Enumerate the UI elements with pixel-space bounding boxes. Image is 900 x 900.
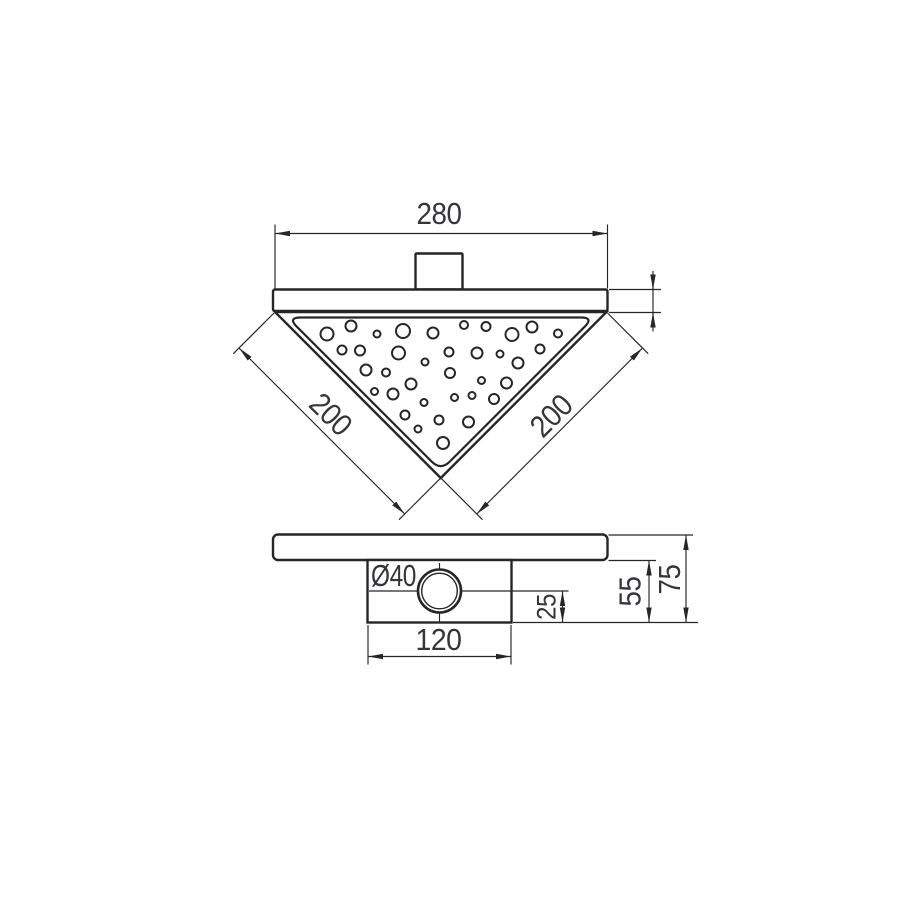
drain-hole <box>445 348 454 357</box>
drain-hole <box>460 321 468 329</box>
mount-tab <box>416 254 463 290</box>
drawing-canvas: 280 200 <box>0 0 900 900</box>
dim-body-height: 55 <box>609 561 657 623</box>
dim-outlet-diameter-label: Ø40 <box>371 558 416 593</box>
dim-offset-25-label: 25 <box>531 594 561 620</box>
drain-hole <box>469 392 476 399</box>
drain-hole <box>489 394 499 404</box>
top-view: 280 200 <box>233 196 661 520</box>
drain-hole <box>482 322 491 331</box>
drain-hole <box>506 328 519 341</box>
drain-hole <box>346 321 357 332</box>
drain-hole <box>415 426 422 433</box>
drain-hole <box>396 324 410 338</box>
drain-hole <box>338 346 347 355</box>
drain-hole <box>355 346 365 356</box>
drain-hole <box>421 399 428 406</box>
drain-hole <box>382 369 390 377</box>
drain-hole <box>321 328 334 341</box>
dim-outlet-axis-to-base: 25 <box>531 591 562 623</box>
drain-hole <box>463 417 474 428</box>
extension-line <box>442 479 483 520</box>
side-view: Ø40 25 55 75 <box>273 535 698 665</box>
drain-hole <box>392 347 405 360</box>
technical-drawing: 280 200 <box>0 0 900 900</box>
drain-hole <box>435 416 444 425</box>
extension-line <box>233 313 274 354</box>
drain-hole <box>371 388 378 395</box>
drain-hole <box>497 351 504 358</box>
dim-overall-width-label: 280 <box>417 196 462 231</box>
side-plate <box>273 535 608 561</box>
outlet-pipe-outer <box>418 570 461 613</box>
drain-hole <box>388 389 399 400</box>
drain-hole <box>554 330 562 338</box>
top-plate-edge <box>273 290 608 312</box>
dim-body-width-label: 120 <box>416 622 462 657</box>
drain-hole <box>437 437 449 449</box>
drain-hole <box>428 328 439 339</box>
drain-hole <box>501 378 512 389</box>
dim-body-width: 120 <box>368 622 511 665</box>
dim-body-height-label: 55 <box>612 577 647 607</box>
drain-hole <box>374 331 381 338</box>
drain-hole <box>422 359 429 366</box>
drain-hole <box>472 348 483 359</box>
drain-hole <box>401 411 410 420</box>
dim-right-edge-label: 200 <box>523 387 580 444</box>
dim-overall-height-label: 75 <box>652 565 687 595</box>
drain-hole <box>536 345 545 354</box>
extension-line <box>608 313 649 354</box>
drain-hole <box>361 365 372 376</box>
dim-left-edge-label: 200 <box>302 386 359 443</box>
drain-hole <box>478 377 485 384</box>
extension-line <box>399 479 440 520</box>
drain-hole <box>445 368 455 378</box>
drain-hole <box>527 322 538 333</box>
drain-hole <box>513 358 524 369</box>
drain-hole <box>406 379 417 390</box>
drain-hole <box>451 394 458 401</box>
